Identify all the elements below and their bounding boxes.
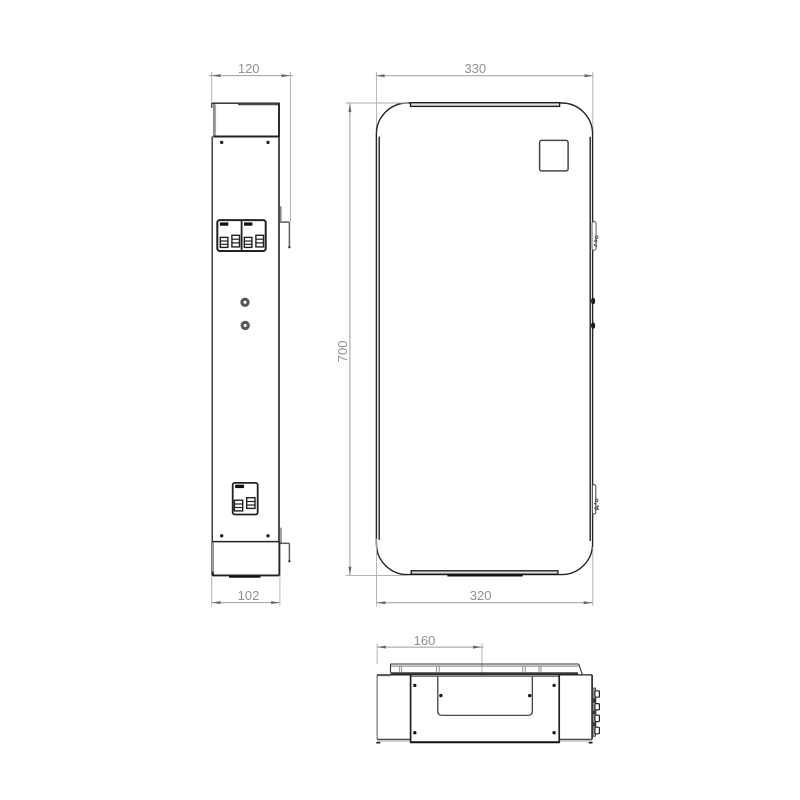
svg-text:320: 320: [470, 588, 492, 603]
svg-text:160: 160: [414, 633, 436, 648]
svg-text:700: 700: [335, 341, 350, 363]
svg-text:330: 330: [464, 61, 486, 76]
svg-text:102: 102: [238, 588, 260, 603]
svg-text:120: 120: [238, 61, 260, 76]
